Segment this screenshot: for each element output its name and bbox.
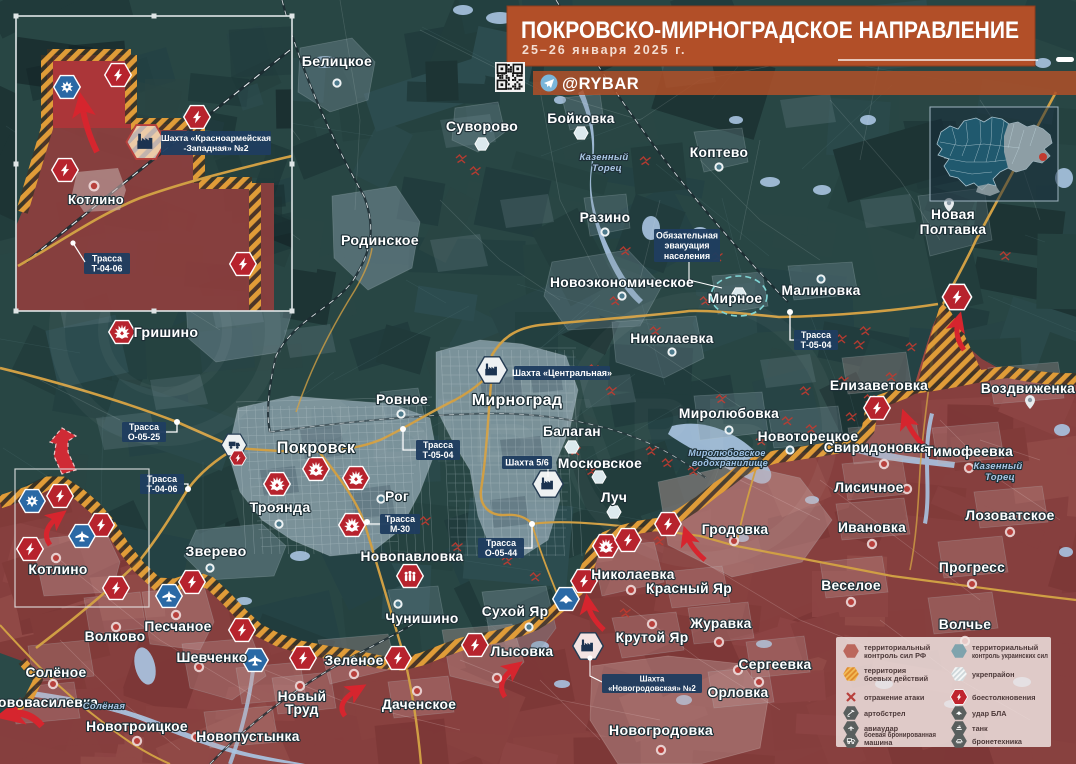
svg-text:контроль украинских сил: контроль украинских сил xyxy=(972,651,1048,660)
svg-text:Трасса: Трасса xyxy=(423,440,453,450)
svg-text:Лысовка: Лысовка xyxy=(491,644,554,659)
svg-text:Николаевка: Николаевка xyxy=(591,567,674,582)
svg-text:Т-05-04: Т-05-04 xyxy=(423,450,454,460)
svg-text:Обязательная: Обязательная xyxy=(656,230,718,240)
svg-text:водохранилище: водохранилище xyxy=(692,458,768,468)
svg-text:Красный Яр: Красный Яр xyxy=(646,581,732,596)
svg-text:Коптево: Коптево xyxy=(690,145,748,160)
svg-text:Веселое: Веселое xyxy=(821,578,881,593)
svg-text:Казенный: Казенный xyxy=(974,461,1023,472)
svg-text:Котлино: Котлино xyxy=(68,192,124,207)
svg-text:Тимофеевка: Тимофеевка xyxy=(925,444,1013,459)
svg-text:Балаган: Балаган xyxy=(543,424,601,439)
svg-text:Новопавловка: Новопавловка xyxy=(360,549,463,564)
svg-text:Ивановка: Ивановка xyxy=(838,520,906,535)
svg-text:Троянда: Троянда xyxy=(249,500,310,516)
svg-text:Шахта «Красноармейская: Шахта «Красноармейская xyxy=(161,133,271,143)
svg-text:Мирноград: Мирноград xyxy=(472,392,563,409)
svg-text:Т-04-06: Т-04-06 xyxy=(92,264,123,274)
svg-text:Зверево: Зверево xyxy=(185,544,246,560)
svg-text:Новопустынка: Новопустынка xyxy=(196,729,300,744)
svg-text:Торец: Торец xyxy=(985,472,1015,483)
svg-text:Свиридоновка: Свиридоновка xyxy=(824,440,928,455)
svg-text:Волково: Волково xyxy=(85,629,146,644)
svg-text:Белицкое: Белицкое xyxy=(302,54,372,70)
svg-text:Журавка: Журавка xyxy=(689,616,751,631)
svg-text:Чунишино: Чунишино xyxy=(385,611,458,626)
svg-text:Лисичное: Лисичное xyxy=(834,480,903,495)
svg-text:Сергеевка: Сергеевка xyxy=(739,657,812,672)
svg-text:Труд: Труд xyxy=(285,702,318,717)
svg-text:«Новогродовская» №2: «Новогродовская» №2 xyxy=(608,684,696,693)
svg-text:Миролюбовское: Миролюбовское xyxy=(688,448,766,458)
svg-text:Трасса: Трасса xyxy=(385,514,415,524)
svg-text:артобстрел: артобстрел xyxy=(864,709,906,718)
svg-text:ПОКРОВСКО-МИРНОГРАДСКОЕ НАПРАВ: ПОКРОВСКО-МИРНОГРАДСКОЕ НАПРАВЛЕНИЕ xyxy=(521,17,1019,44)
svg-text:машина: машина xyxy=(864,738,893,747)
svg-text:эвакуация: эвакуация xyxy=(664,241,709,251)
svg-text:Московское: Московское xyxy=(558,456,642,471)
svg-text:Трасса: Трасса xyxy=(486,538,516,548)
svg-text:Шахта: Шахта xyxy=(640,675,665,684)
svg-text:Сухой Яр: Сухой Яр xyxy=(482,604,549,619)
svg-text:Волчье: Волчье xyxy=(939,617,991,632)
svg-text:контроль сил РФ: контроль сил РФ xyxy=(864,651,926,660)
svg-text:Шевченко: Шевченко xyxy=(176,650,247,665)
svg-text:Гришино: Гришино xyxy=(134,325,199,341)
svg-text:М-30: М-30 xyxy=(390,524,410,534)
svg-text:Покровск: Покровск xyxy=(277,439,356,457)
svg-text:Гродовка: Гродовка xyxy=(702,522,769,537)
svg-text:Песчаное: Песчаное xyxy=(144,619,211,634)
svg-text:Новоэкономическое: Новоэкономическое xyxy=(550,275,694,290)
svg-text:Разино: Разино xyxy=(580,210,631,225)
svg-text:Лозоватское: Лозоватское xyxy=(965,508,1054,523)
svg-text:Елизаветовка: Елизаветовка xyxy=(830,378,928,393)
svg-text:Т-05-04: Т-05-04 xyxy=(801,340,832,350)
svg-text:Зеленое: Зеленое xyxy=(324,653,383,668)
svg-text:Воздвиженка: Воздвиженка xyxy=(981,381,1075,396)
svg-text:Шахта «Центральная»: Шахта «Центральная» xyxy=(512,368,612,378)
svg-text:Солёное: Солёное xyxy=(25,665,86,680)
svg-text:Рог: Рог xyxy=(385,489,409,504)
svg-text:укрепрайон: укрепрайон xyxy=(972,670,1015,679)
svg-text:Трасса: Трасса xyxy=(129,422,159,432)
svg-text:Николаевка: Николаевка xyxy=(630,331,713,346)
svg-text:бронетехника: бронетехника xyxy=(972,737,1023,746)
svg-text:Малиновка: Малиновка xyxy=(781,283,860,298)
svg-text:О-05-25: О-05-25 xyxy=(128,432,160,442)
svg-text:Трасса: Трасса xyxy=(801,330,831,340)
svg-text:О-05-44: О-05-44 xyxy=(485,548,517,558)
svg-text:Мирное: Мирное xyxy=(708,291,763,306)
svg-text:Котлино: Котлино xyxy=(28,562,87,577)
svg-text:населения: населения xyxy=(664,251,710,261)
svg-text:Новогродовка: Новогродовка xyxy=(609,723,713,739)
svg-text:Т-04-06: Т-04-06 xyxy=(147,484,178,494)
svg-text:Трасса: Трасса xyxy=(147,474,177,484)
svg-text:отражение атаки: отражение атаки xyxy=(864,693,924,702)
svg-text:Казенный: Казенный xyxy=(580,152,629,163)
svg-text:Прогресс: Прогресс xyxy=(939,560,1005,575)
svg-text:Торец: Торец xyxy=(592,163,622,174)
svg-text:Крутой Яр: Крутой Яр xyxy=(616,630,689,645)
svg-text:Орловка: Орловка xyxy=(708,685,769,700)
svg-text:удар БЛА: удар БЛА xyxy=(972,709,1007,718)
svg-text:Бойковка: Бойковка xyxy=(547,111,614,126)
svg-text:Полтавка: Полтавка xyxy=(920,222,987,237)
svg-text:25–26 января 2025 г.: 25–26 января 2025 г. xyxy=(522,43,687,57)
svg-text:@RYBAR: @RYBAR xyxy=(562,75,639,93)
svg-text:Трасса: Трасса xyxy=(92,253,122,263)
svg-text:Даченское: Даченское xyxy=(382,697,456,712)
svg-text:Родинское: Родинское xyxy=(341,233,419,249)
svg-text:танк: танк xyxy=(972,724,988,733)
svg-text:Солёная: Солёная xyxy=(83,701,126,712)
svg-text:Новая: Новая xyxy=(931,207,975,222)
svg-text:Миролюбовка: Миролюбовка xyxy=(679,406,779,421)
svg-text:боевых действий: боевых действий xyxy=(864,674,928,683)
svg-text:Ровное: Ровное xyxy=(376,392,428,407)
svg-text:Новотроицкое: Новотроицкое xyxy=(86,719,188,734)
svg-text:Суворово: Суворово xyxy=(446,119,518,135)
svg-text:-Западная» №2: -Западная» №2 xyxy=(184,143,249,153)
svg-text:боестолкновения: боестолкновения xyxy=(972,693,1036,702)
svg-text:Луч: Луч xyxy=(601,490,627,505)
svg-text:Шахта 5/6: Шахта 5/6 xyxy=(505,458,548,468)
